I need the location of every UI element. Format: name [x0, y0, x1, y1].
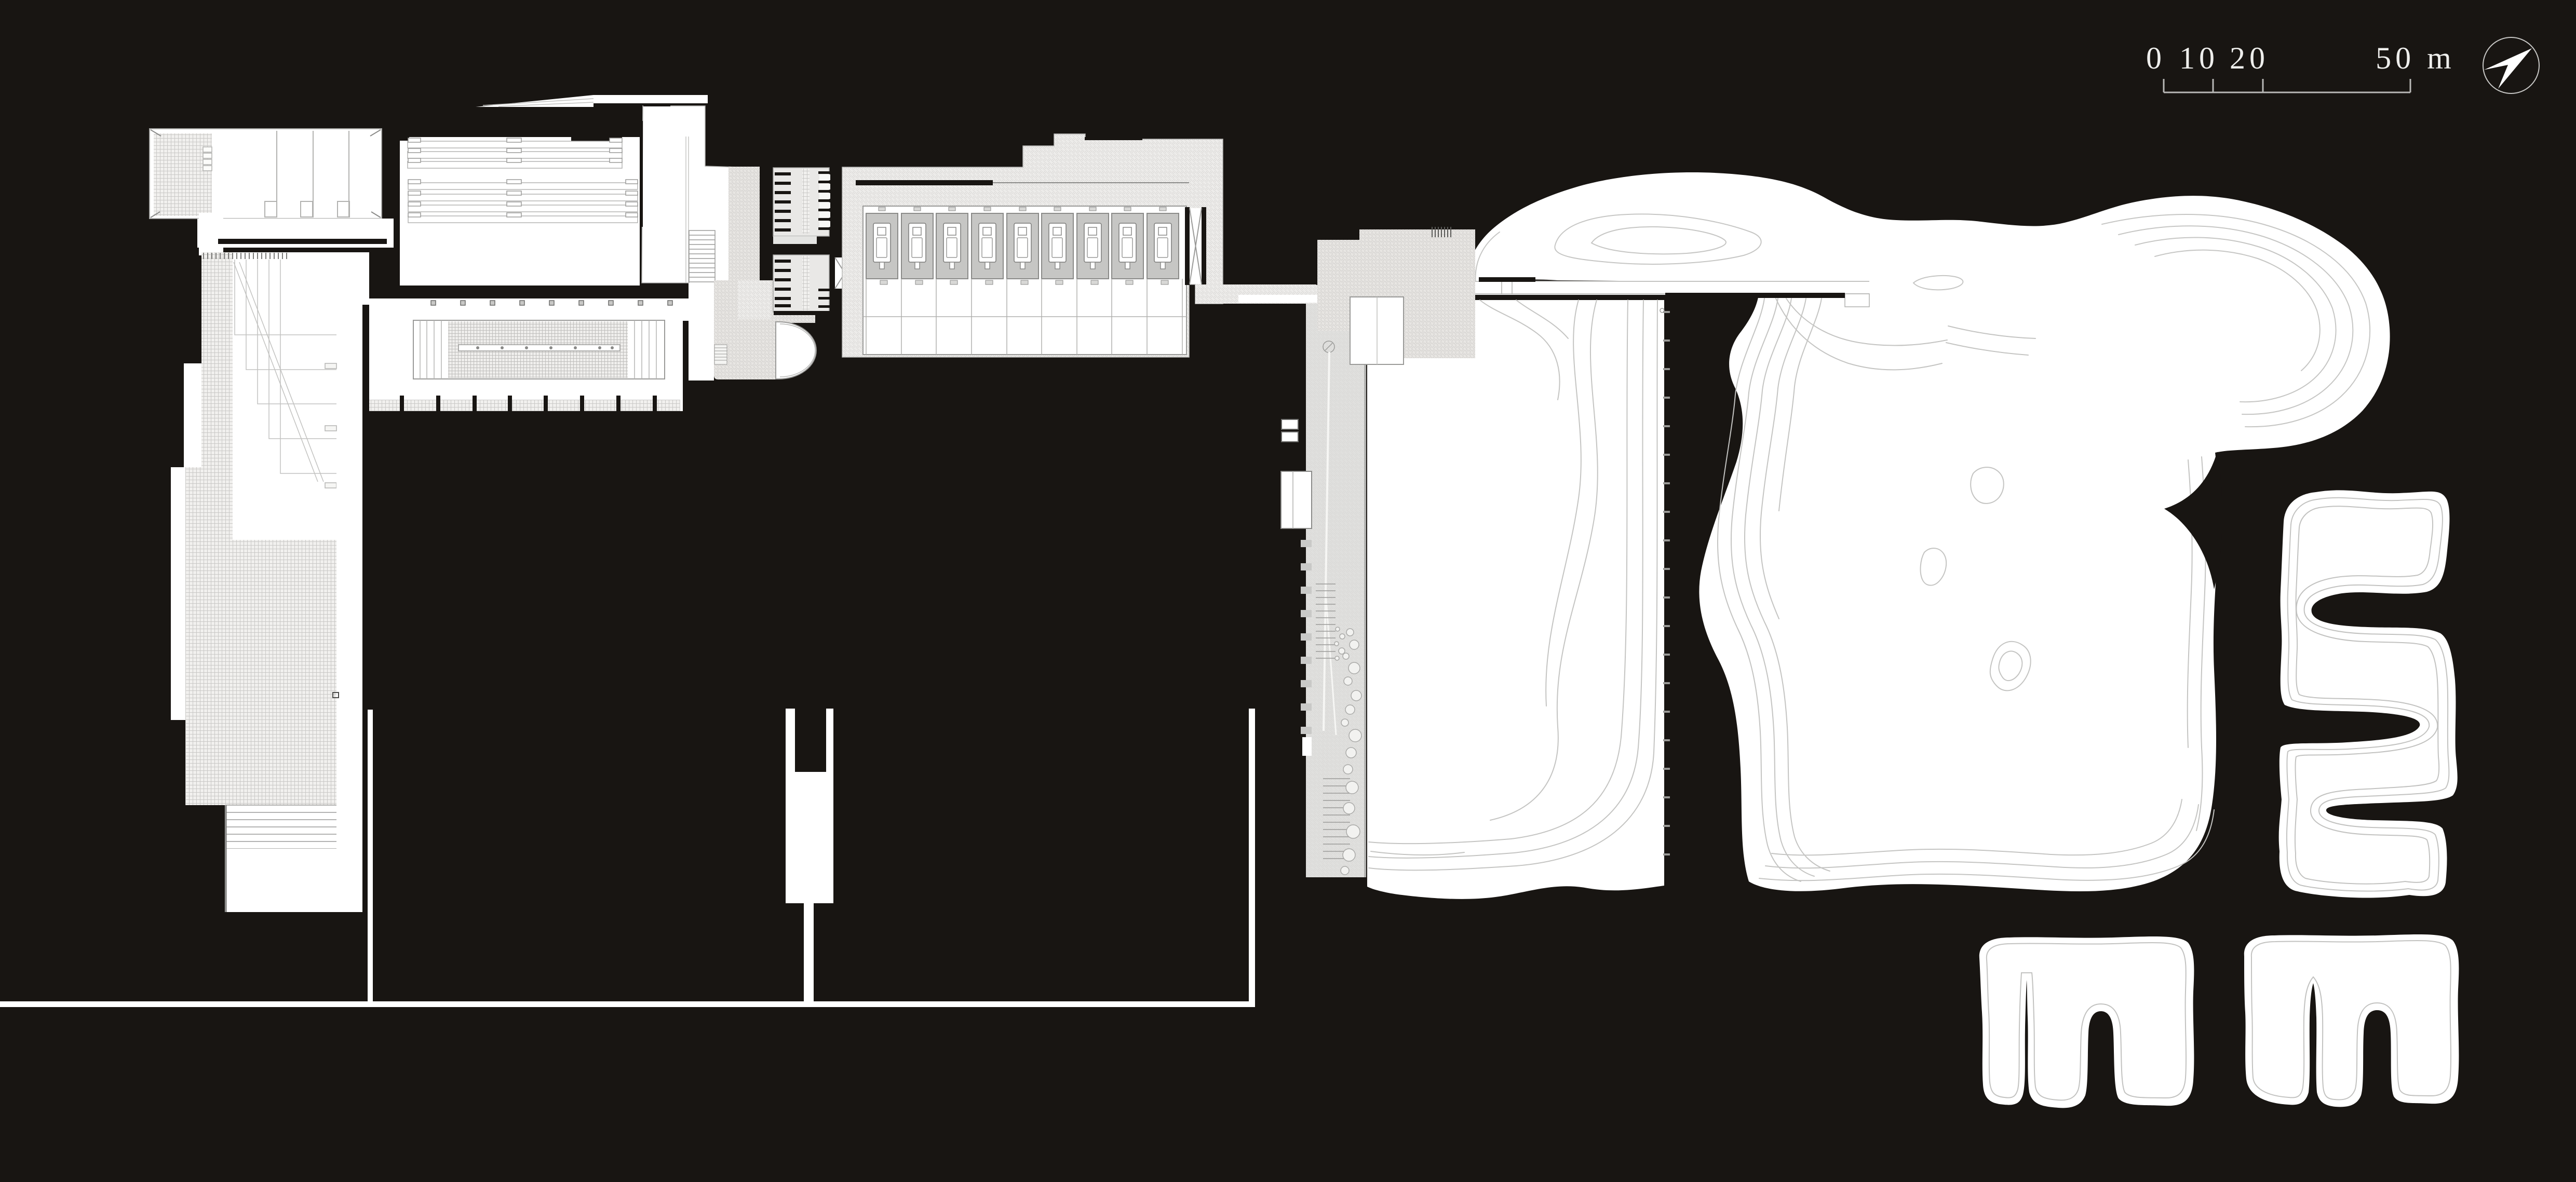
svg-text:0: 0: [2146, 41, 2166, 75]
svg-text:50 m: 50 m: [2376, 41, 2456, 75]
svg-text:20: 20: [2230, 41, 2269, 75]
svg-text:10: 10: [2179, 41, 2219, 75]
